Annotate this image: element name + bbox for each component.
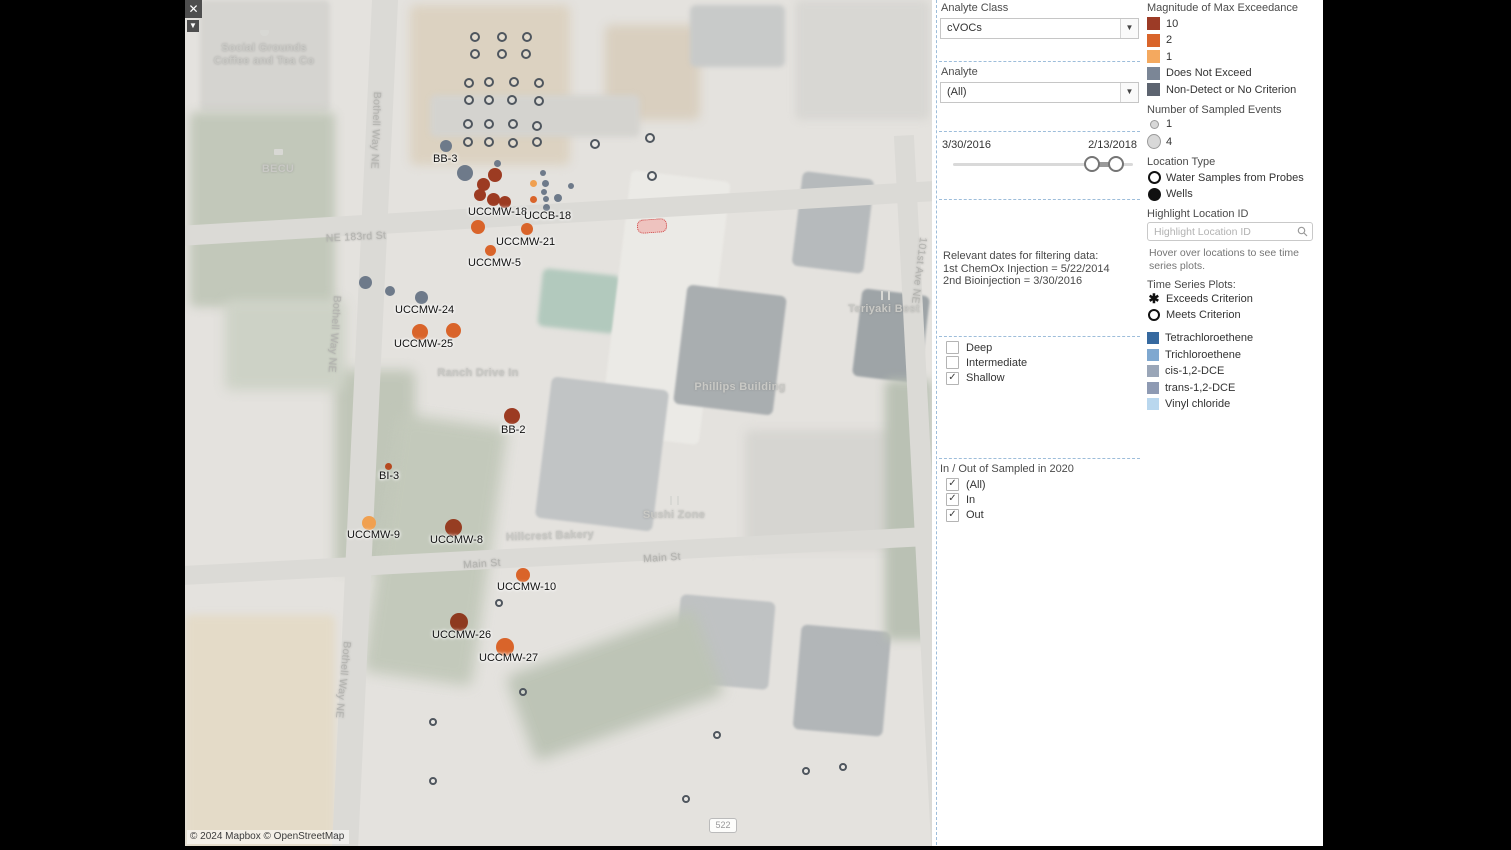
- well-marker[interactable]: [568, 183, 574, 189]
- checkbox-label: Deep: [966, 342, 992, 354]
- legend-label: 2: [1166, 34, 1172, 46]
- map-patch: [793, 624, 892, 736]
- well-label: UCCMW-5: [468, 257, 521, 269]
- slider-end-date: 2/13/2018: [1088, 139, 1137, 151]
- legend-item[interactable]: Non-Detect or No Criterion: [1147, 83, 1296, 96]
- map-text-label: Main St: [463, 557, 501, 572]
- map-patch: [185, 615, 335, 846]
- legend-label: 1: [1166, 118, 1172, 130]
- analyte-dropdown[interactable]: (All) ▼: [940, 82, 1139, 103]
- well-marker[interactable]: [362, 516, 376, 530]
- legend-label: 10: [1166, 18, 1178, 30]
- glyph-cell: [1147, 309, 1161, 321]
- map-text-label: Coffee and Tea Co: [214, 55, 315, 67]
- open-circle-icon: [1148, 309, 1160, 321]
- magnitude-legend-title: Magnitude of Max Exceedance: [1147, 2, 1298, 14]
- map-patch: [506, 609, 725, 762]
- relevant-dates-note: Relevant dates for filtering data: 1st C…: [943, 251, 1139, 289]
- separator: [939, 458, 1140, 459]
- glyph-cell: [1147, 171, 1161, 184]
- location-type-title: Location Type: [1147, 156, 1215, 168]
- highlight-location-input-wrap: [1147, 222, 1313, 241]
- legend-item[interactable]: 1: [1147, 50, 1172, 63]
- probe-marker[interactable]: [484, 137, 494, 147]
- legend-swatch: [1147, 349, 1159, 361]
- probe-marker[interactable]: [463, 119, 473, 129]
- separator: [939, 199, 1140, 200]
- probe-marker[interactable]: [532, 121, 542, 131]
- probe-marker[interactable]: [713, 731, 721, 739]
- size-circle: [1147, 134, 1161, 149]
- legend-label: cis-1,2-DCE: [1165, 365, 1224, 377]
- legend-label: Vinyl chloride: [1165, 398, 1230, 410]
- legend-label: Does Not Exceed: [1166, 67, 1252, 79]
- legend-item[interactable]: Meets Criterion: [1147, 309, 1241, 321]
- well-label: BB-3: [433, 153, 457, 165]
- legend-item[interactable]: 4: [1147, 134, 1172, 149]
- well-label: UCCMW-27: [479, 652, 538, 664]
- well-marker[interactable]: [530, 196, 537, 203]
- probe-marker[interactable]: [682, 795, 690, 803]
- checkbox[interactable]: [946, 356, 959, 369]
- probe-marker[interactable]: [470, 49, 480, 59]
- legend-swatch: [1147, 34, 1160, 47]
- legend-item[interactable]: Trichloroethene: [1147, 349, 1241, 361]
- legend-swatch: [1147, 67, 1160, 80]
- well-marker[interactable]: [359, 276, 372, 289]
- probe-marker[interactable]: [522, 32, 532, 42]
- route-522-shield: 522: [709, 818, 737, 833]
- legend-label: Tetrachloroethene: [1165, 332, 1253, 344]
- open-circle-icon: [1148, 171, 1161, 184]
- map-patch: [673, 284, 787, 415]
- well-label: UCCMW-9: [347, 529, 400, 541]
- legend-item[interactable]: trans-1,2-DCE: [1147, 382, 1235, 394]
- well-marker[interactable]: [521, 223, 533, 235]
- map-text-label: Ranch Drive In: [437, 367, 518, 379]
- probe-marker[interactable]: [484, 77, 494, 87]
- legend-swatch: [1147, 50, 1160, 63]
- probe-marker[interactable]: [508, 138, 518, 148]
- legend-label: Wells: [1166, 188, 1193, 200]
- map-text-label: Hillcrest Bakery: [506, 528, 594, 543]
- checkbox-row-intermediate[interactable]: Intermediate: [946, 356, 1027, 369]
- probe-marker[interactable]: [645, 133, 655, 143]
- well-marker[interactable]: [385, 286, 395, 296]
- probe-marker[interactable]: [802, 767, 810, 775]
- map-patch: [690, 5, 785, 67]
- map-close-button[interactable]: ✕: [185, 0, 202, 18]
- glyph-cell: [1147, 134, 1161, 149]
- legend-item[interactable]: Tetrachloroethene: [1147, 332, 1253, 344]
- well-marker[interactable]: [415, 291, 428, 304]
- probe-marker[interactable]: [464, 95, 474, 105]
- restaurant-icon: [670, 496, 679, 505]
- analyte-title: Analyte: [941, 66, 1139, 78]
- legend-label: Meets Criterion: [1166, 309, 1241, 321]
- legend-item[interactable]: Does Not Exceed: [1147, 67, 1252, 80]
- legend-swatch: [1147, 332, 1159, 344]
- probe-marker[interactable]: [495, 599, 503, 607]
- date-slider: 3/30/2016 2/13/2018: [940, 139, 1139, 194]
- well-label: UCCMW-24: [395, 304, 454, 316]
- checkbox-row-all[interactable]: ✓(All): [946, 478, 986, 491]
- highlight-location-input[interactable]: [1152, 223, 1296, 240]
- well-marker[interactable]: [474, 189, 486, 201]
- probe-marker[interactable]: [509, 77, 519, 87]
- checkbox-label: Intermediate: [966, 357, 1027, 369]
- checkbox-row-deep[interactable]: Deep: [946, 341, 992, 354]
- well-marker[interactable]: [541, 189, 547, 195]
- probe-marker[interactable]: [429, 777, 437, 785]
- glyph-cell: ✱: [1147, 292, 1161, 305]
- legend-item[interactable]: Vinyl chloride: [1147, 398, 1230, 410]
- well-label: BB-2: [501, 424, 525, 436]
- probe-marker[interactable]: [590, 139, 600, 149]
- separator: [939, 61, 1140, 62]
- probe-marker[interactable]: [534, 78, 544, 88]
- well-marker[interactable]: [488, 168, 502, 182]
- legend-label: Non-Detect or No Criterion: [1166, 84, 1296, 96]
- glyph-cell: [1147, 188, 1161, 201]
- well-label: UCCMW-8: [430, 534, 483, 546]
- chevron-down-icon[interactable]: ▼: [1120, 19, 1138, 38]
- checkbox[interactable]: ✓: [946, 372, 959, 385]
- hover-hint: Hover over locations to see time series …: [1149, 247, 1317, 273]
- legend-label: Trichloroethene: [1165, 349, 1241, 361]
- checkbox[interactable]: ✓: [946, 493, 959, 506]
- map-patch: [537, 268, 621, 334]
- legend-label: 4: [1166, 136, 1172, 148]
- well-label: UCCMW-10: [497, 581, 556, 593]
- well-marker[interactable]: [543, 196, 549, 202]
- analyte-value: (All): [941, 83, 1120, 102]
- legend-swatch: [1147, 83, 1160, 96]
- legend-item[interactable]: Wells: [1147, 188, 1193, 201]
- probe-marker[interactable]: [470, 32, 480, 42]
- well-label: UCCB-18: [524, 210, 571, 222]
- legend-swatch: [1147, 398, 1159, 410]
- time-series-title: Time Series Plots:: [1147, 279, 1236, 291]
- highlight-location-title: Highlight Location ID: [1147, 208, 1249, 220]
- map-text-label: Teriyaki Best: [848, 303, 920, 315]
- probe-marker[interactable]: [532, 137, 542, 147]
- probe-marker[interactable]: [521, 49, 531, 59]
- sampled-events-title: Number of Sampled Events: [1147, 104, 1282, 116]
- well-marker[interactable]: [540, 170, 546, 176]
- asterisk-icon: ✱: [1149, 292, 1160, 305]
- well-marker[interactable]: [494, 160, 501, 167]
- legend-swatch: [1147, 17, 1160, 30]
- well-marker[interactable]: [440, 140, 452, 152]
- well-marker[interactable]: [542, 180, 549, 187]
- legend-label: Water Samples from Probes: [1166, 172, 1304, 184]
- map-toolbar-caret-button[interactable]: ▼: [187, 20, 199, 32]
- filled-circle-icon: [1148, 188, 1161, 201]
- well-marker[interactable]: [471, 220, 485, 234]
- well-marker[interactable]: [445, 519, 462, 536]
- restaurant-icon: [881, 291, 890, 300]
- map-text-label: Sushi Zone: [643, 509, 705, 521]
- well-marker[interactable]: [457, 165, 473, 181]
- analyte-class-value: cVOCs: [941, 19, 1120, 38]
- probe-marker[interactable]: [429, 718, 437, 726]
- well-label: UCCMW-26: [432, 629, 491, 641]
- well-label: UCCMW-21: [496, 236, 555, 248]
- probe-marker[interactable]: [463, 137, 473, 147]
- legend-panel: Magnitude of Max Exceedance 1021Does Not…: [1143, 0, 1323, 846]
- legend-label: Exceeds Criterion: [1166, 293, 1253, 305]
- checkbox[interactable]: ✓: [946, 478, 959, 491]
- probe-marker[interactable]: [507, 95, 517, 105]
- map-patch: [190, 112, 335, 307]
- analyte-class-title: Analyte Class: [941, 2, 1139, 14]
- screenshot-root: Social GroundsCoffee and Tea CoBECUNE 18…: [0, 0, 1511, 850]
- transit-highlight: [637, 218, 668, 234]
- legend-item[interactable]: 10: [1147, 17, 1178, 30]
- well-marker[interactable]: [446, 323, 461, 338]
- well-label: UCCMW-25: [394, 338, 453, 350]
- filter-panel: Analyte Class cVOCs ▼ Analyte (All) ▼ 3/…: [937, 0, 1143, 846]
- legend-item[interactable]: Water Samples from Probes: [1147, 171, 1304, 184]
- in-out-title: In / Out of Sampled in 2020: [940, 463, 1074, 475]
- map-attribution[interactable]: © 2024 Mapbox © OpenStreetMap: [187, 830, 349, 844]
- probe-marker[interactable]: [839, 763, 847, 771]
- probe-marker[interactable]: [534, 96, 544, 106]
- checkbox-row-in[interactable]: ✓In: [946, 493, 975, 506]
- well-label: BI-3: [379, 470, 399, 482]
- well-marker[interactable]: [516, 568, 530, 582]
- legend-item[interactable]: cis-1,2-DCE: [1147, 365, 1224, 377]
- checkbox-row-out[interactable]: ✓Out: [946, 509, 984, 522]
- legend-item[interactable]: ✱Exceeds Criterion: [1147, 292, 1253, 305]
- well-marker[interactable]: [554, 194, 562, 202]
- checkbox[interactable]: ✓: [946, 509, 959, 522]
- slider-start-date: 3/30/2016: [942, 139, 991, 151]
- size-circle: [1150, 120, 1159, 129]
- glyph-cell: [1147, 120, 1161, 129]
- dashboard: Social GroundsCoffee and Tea CoBECUNE 18…: [185, 0, 1323, 846]
- slider-handle-right[interactable]: [1108, 156, 1124, 172]
- well-marker[interactable]: [530, 180, 537, 187]
- bank-icon: [274, 149, 283, 155]
- checkbox-label: Shallow: [966, 372, 1005, 384]
- map-canvas[interactable]: Social GroundsCoffee and Tea CoBECUNE 18…: [185, 0, 932, 846]
- map-text-label: BECU: [262, 163, 294, 175]
- legend-swatch: [1147, 382, 1159, 394]
- checkbox-label: In: [966, 494, 975, 506]
- separator: [939, 336, 1140, 337]
- map-text-label: Phillips Building: [694, 381, 785, 393]
- probe-marker[interactable]: [484, 119, 494, 129]
- checkbox-label: Out: [966, 509, 984, 521]
- checkbox-label: (All): [966, 479, 986, 491]
- legend-label: trans-1,2-DCE: [1165, 382, 1235, 394]
- well-label: UCCMW-18: [468, 206, 527, 218]
- analyte-class-dropdown[interactable]: cVOCs ▼: [940, 18, 1139, 39]
- slider-handle-left[interactable]: [1084, 156, 1100, 172]
- probe-marker[interactable]: [497, 49, 507, 59]
- checkbox[interactable]: [946, 341, 959, 354]
- map-text-label: Main St: [643, 551, 681, 566]
- well-marker[interactable]: [385, 463, 392, 470]
- chevron-down-icon[interactable]: ▼: [1120, 83, 1138, 102]
- probe-marker[interactable]: [484, 95, 494, 105]
- probe-marker[interactable]: [508, 119, 518, 129]
- probe-marker[interactable]: [464, 78, 474, 88]
- probe-marker[interactable]: [647, 171, 657, 181]
- probe-marker[interactable]: [497, 32, 507, 42]
- legend-label: 1: [1166, 51, 1172, 63]
- probe-marker[interactable]: [519, 688, 527, 696]
- map-text-label: Social Grounds: [221, 42, 307, 54]
- map-patch: [795, 0, 930, 120]
- separator: [939, 131, 1140, 132]
- search-icon: [1297, 226, 1308, 237]
- well-marker[interactable]: [504, 408, 520, 424]
- legend-swatch: [1147, 365, 1159, 377]
- checkbox-row-shallow[interactable]: ✓Shallow: [946, 372, 1005, 385]
- well-marker[interactable]: [485, 245, 496, 256]
- well-marker[interactable]: [487, 193, 500, 206]
- legend-item[interactable]: 2: [1147, 34, 1172, 47]
- legend-item[interactable]: 1: [1147, 118, 1172, 130]
